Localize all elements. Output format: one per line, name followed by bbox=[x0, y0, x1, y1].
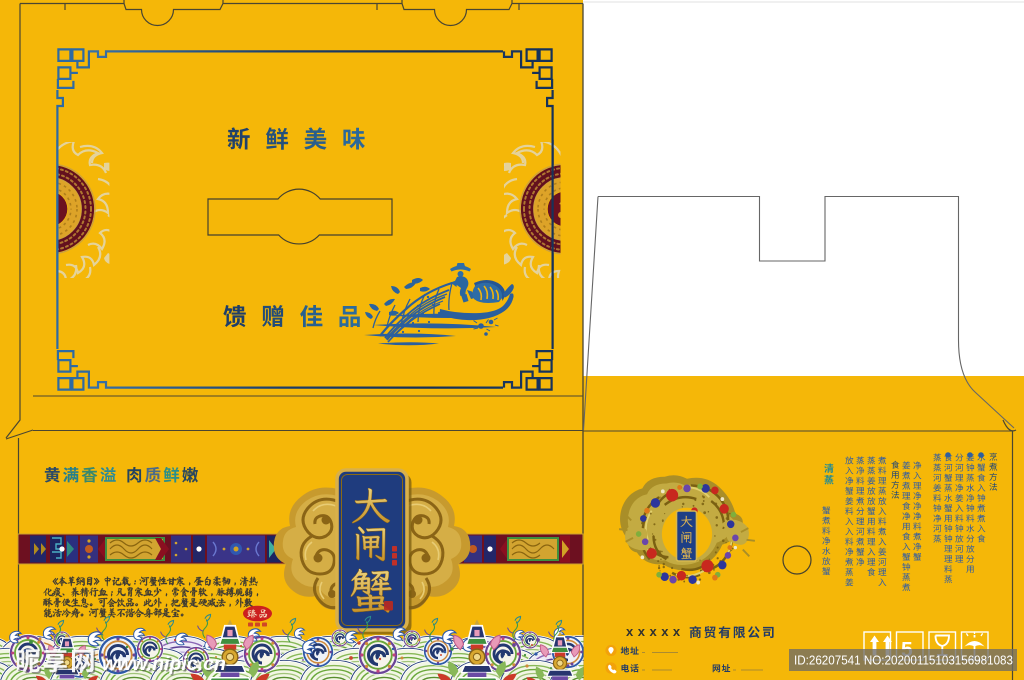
svg-text:www.nipic.cn: www.nipic.cn bbox=[102, 653, 226, 675]
svg-text:xxxxx: xxxxx bbox=[626, 624, 685, 639]
svg-text:ID:26207541 NO:202001151031569: ID:26207541 NO:20200115103156981083 bbox=[794, 654, 1013, 668]
